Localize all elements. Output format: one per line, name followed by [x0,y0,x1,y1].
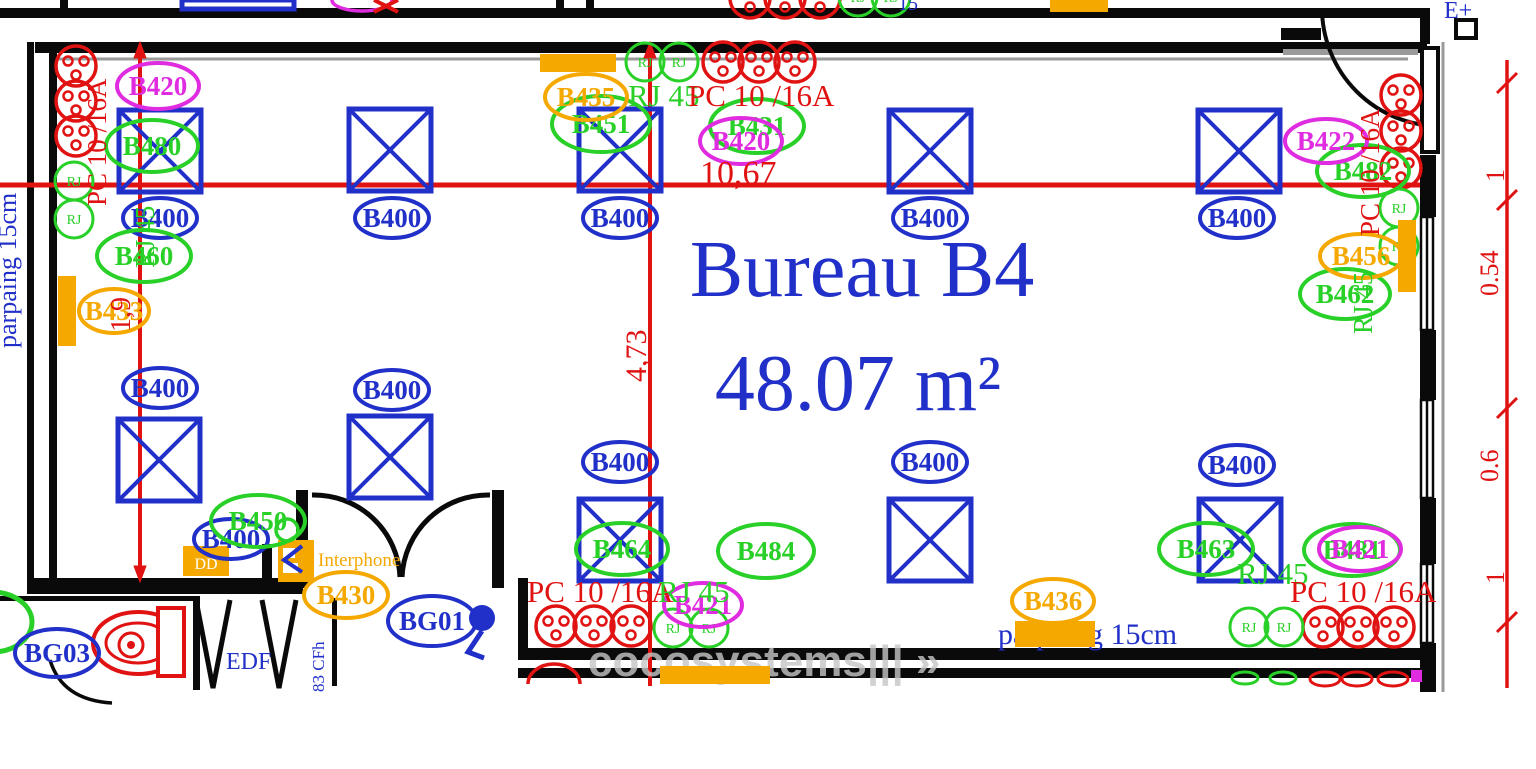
wall-right-s3 [1420,498,1436,564]
device-tag-label: B450 [229,506,288,536]
rj45-port-label: RJ [1242,621,1257,636]
rj45-port-label: RJ [884,0,899,6]
device-tag-label: B420 [712,126,771,156]
toilet-cistern [158,608,184,676]
annotation-text: DD [194,556,217,573]
device-tag-label: B400 [1208,450,1267,480]
device-tag: B400 [583,442,657,482]
wall-left-inner [49,42,57,582]
device-tag-label: B464 [593,534,652,564]
wall-bottom-left [27,578,303,594]
annotation-text: 83 CFh [309,641,328,692]
device-tag-label: B456 [1332,241,1391,271]
annotation-text: parpaing 15cm [0,193,22,348]
device-tag-label: B422 [1297,126,1356,156]
device-tag: B400 [123,368,197,408]
annotation-text: PC 10 /16A [527,574,674,609]
wc-wall-thin [0,596,200,601]
annotation-text: 15 [898,0,918,15]
device-tag-label: B435 [557,82,616,112]
wall-right-s2 [1420,330,1436,400]
device-tag-label: B400 [363,375,422,405]
rj45-port-label: RJ [672,56,687,71]
annotation-text: RJ 45 [1348,272,1378,334]
device-tag-label: B400 [901,447,960,477]
annotation-text: 10,67 [700,155,777,192]
annotation-text: 1,9 [106,297,137,332]
device-tag: B400 [1200,445,1274,485]
annotation-text: PC 10 /16A [1355,108,1385,236]
device-tag-label: B430 [317,580,376,610]
door-post-right [492,490,504,588]
device-tag-label: B480 [123,131,182,161]
equipment-bar [58,276,76,346]
annotation-text: PC 10 /16A [82,78,112,206]
annotation-text: PC 10 /16A [1290,574,1437,609]
device-tag-label: BG03 [24,638,90,668]
wall-right-corner [1420,8,1430,44]
wall-stub [586,0,594,12]
door-lintel-block [1281,28,1321,40]
annotation-text: 0.6 [1475,450,1504,483]
floor-plan-viewport: RJRJRJRJRJRJRJRJRJRJRJRJB400B400B400B400… [0,0,1536,769]
device-tag-label: B484 [737,536,796,566]
annotation-text: PC 10 /16A [688,78,835,113]
wall-left-outer [27,42,34,580]
equipment-bar [1398,220,1416,292]
rj45-port-label: RJ [1392,202,1407,217]
annotation-text: Bureau B4 [690,226,1034,314]
wall-right-s4 [1420,643,1436,692]
equipment-bar [1015,621,1095,647]
annotation-text: Interphone [318,550,400,571]
device-tag-label: B400 [1208,203,1267,233]
device-tag-label: B400 [131,373,190,403]
door-leaf-right-wall [1422,48,1438,152]
rj45-port-label: RJ [851,0,866,6]
annotation-text: 48.07 m² [715,340,1001,428]
device-tag-label: B436 [1024,586,1083,616]
rj45-port-label: RJ [1277,621,1292,636]
device-tag-label: B400 [591,447,650,477]
lower-room-tag [1411,670,1422,682]
wall-stub [60,0,68,10]
device-tag-label: B451 [572,109,631,139]
equipment-bar [1050,0,1108,12]
closet-post [332,598,337,686]
device-tag: B400 [583,198,657,238]
annotation-text: RJ 45 [658,574,730,609]
wall-stub [556,0,564,12]
device-tag-label: B400 [363,203,422,233]
equipment-bar [540,54,616,72]
device-tag-label: B463 [1177,534,1236,564]
annotation-text: 4,73 [620,330,653,383]
equipment-bar [660,666,770,684]
rj45-port-label: RJ [67,213,82,228]
annotation-text: 1 [1481,571,1510,584]
annotation-text: EDF [226,649,271,675]
rj45-port-label: RJ [638,56,653,71]
device-tag-label: BG01 [399,606,465,636]
device-tag-label: B400 [591,203,650,233]
annotation-text: 0.54 [1475,251,1504,297]
device-tag: B400 [893,442,967,482]
device-tag: B400 [355,370,429,410]
floor-plan: RJRJRJRJRJRJRJRJRJRJRJRJB400B400B400B400… [0,0,1536,769]
device-tag: B400 [1200,198,1274,238]
device-tag-label: B421 [1331,534,1390,564]
toilet-drain-dot [127,641,135,649]
rj45-port-label: RJ [67,175,82,190]
annotation-text: RJ 45 [130,206,160,268]
annotation-text: E+ [1444,0,1472,24]
annotation-text: 1 [1481,169,1510,182]
device-tag-label: B420 [129,71,188,101]
device-tag: B400 [355,198,429,238]
